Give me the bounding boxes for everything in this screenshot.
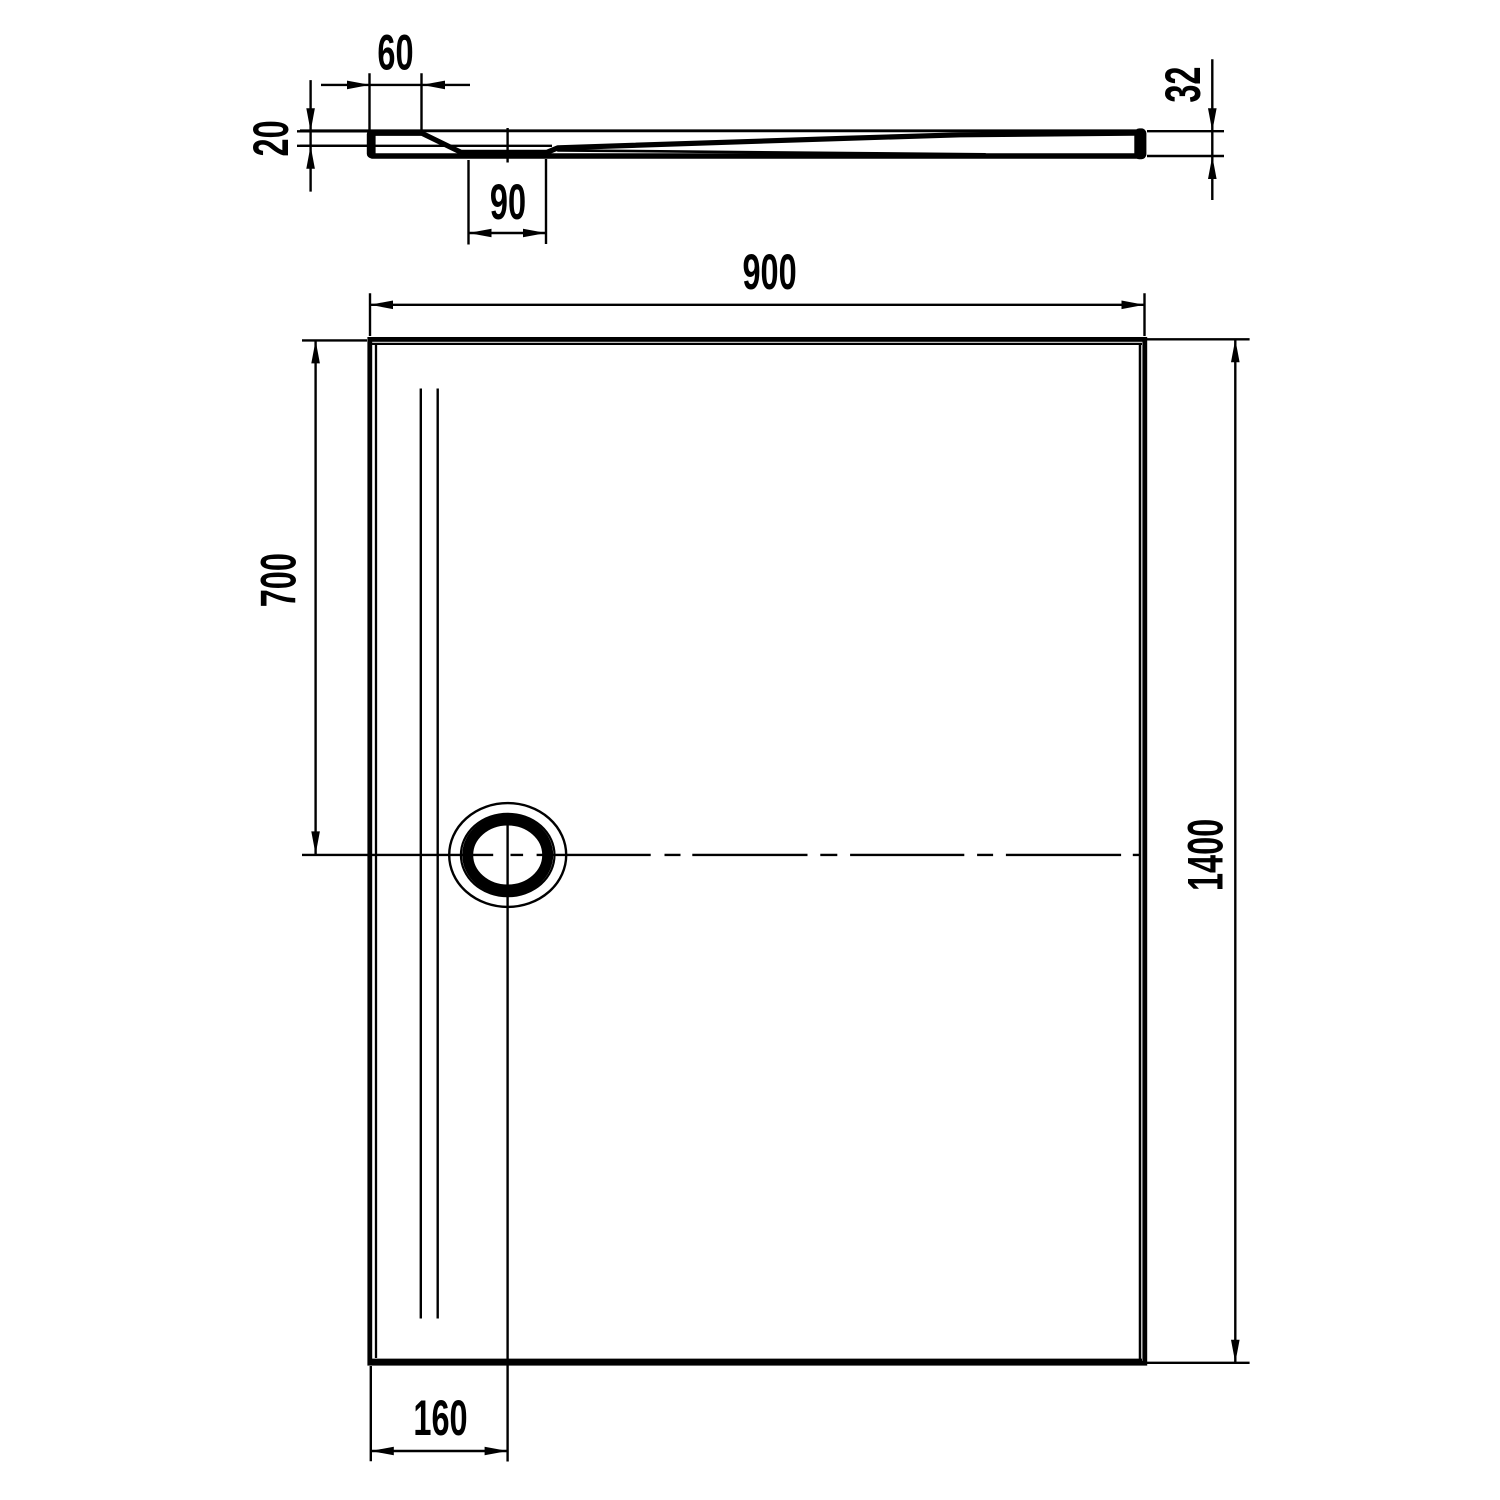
svg-text:160: 160 bbox=[413, 1390, 467, 1446]
svg-text:20: 20 bbox=[243, 120, 299, 156]
svg-text:90: 90 bbox=[490, 174, 526, 230]
svg-text:60: 60 bbox=[377, 25, 413, 81]
svg-text:700: 700 bbox=[250, 553, 306, 607]
svg-text:32: 32 bbox=[1155, 67, 1211, 103]
svg-text:1400: 1400 bbox=[1178, 819, 1234, 891]
svg-text:900: 900 bbox=[742, 244, 796, 300]
